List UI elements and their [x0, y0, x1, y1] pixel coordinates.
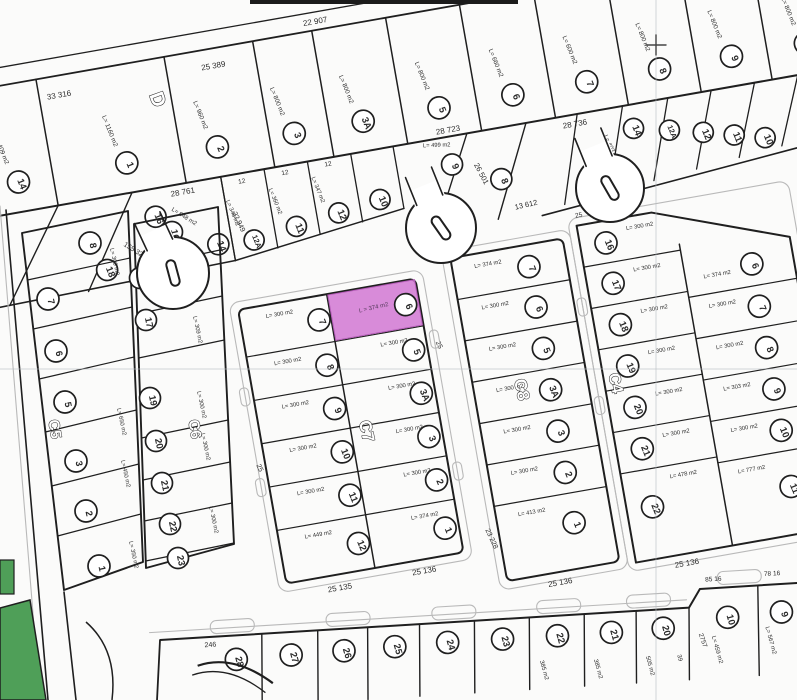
parcel-number-17: 17: [600, 271, 625, 296]
area-label: L= 300 m2: [633, 263, 661, 274]
area-label: L= 300 m2: [626, 221, 654, 232]
parcel-number-9: 9: [322, 396, 347, 421]
parcel-number-7: 7: [516, 254, 541, 279]
parcel-number-20: 20: [622, 395, 647, 420]
area-label: L= 600 m2: [561, 35, 579, 66]
boundary-line: [479, 404, 591, 424]
parcel-number-1: 1: [561, 510, 586, 535]
area-label: L= 300 m2: [265, 309, 293, 320]
parcel-number-6: 6: [523, 294, 548, 319]
parcel-number-24: 24: [436, 631, 459, 654]
parcel-number-12: 12: [346, 531, 371, 556]
boundary-line: [312, 31, 334, 157]
parcel-number-8: 8: [314, 352, 339, 377]
boundary-line: [685, 608, 693, 680]
parcel-number-12: 12: [692, 121, 715, 144]
boundary-line: [591, 291, 688, 308]
parcel-number-6: 6: [45, 340, 67, 362]
boundary-line: [58, 514, 141, 536]
boundary-line: [533, 0, 555, 118]
width-tick: 12: [324, 160, 333, 168]
parcel-number-1: 1: [88, 555, 110, 577]
boundary-line: [386, 18, 408, 144]
boundary-line: [487, 445, 599, 465]
boundary-number: 13 612: [514, 198, 538, 212]
area-label: L= 300 m2: [297, 487, 325, 498]
boundary-number: 22 907: [302, 15, 328, 28]
parcel-number-22: 22: [546, 624, 569, 647]
boundary-number: 78 16: [764, 570, 781, 578]
parcel-number-5: 5: [531, 336, 556, 361]
cadastral-map-canvas: 14L= 409 m21L= 1160 m22L= 960 m23L= 800 …: [0, 0, 797, 700]
area-label: L= 300 m2: [274, 357, 302, 368]
boundary-number: 246: [204, 642, 216, 650]
parcel-number-12: 12: [327, 201, 350, 224]
boundary-number: 25 135: [327, 581, 353, 594]
parcel-number-2: 2: [75, 500, 97, 522]
area-label: L= 374 m2: [474, 259, 502, 270]
lot-number: 22: [166, 520, 179, 533]
area-label: L= 300 m2: [662, 428, 690, 439]
boundary-number: 25 136: [411, 564, 437, 577]
boundary-line: [640, 98, 681, 181]
bottom-block: 28246272625242322385 m221385 m220505 m21…: [148, 566, 797, 700]
green-area: [0, 600, 46, 700]
parcel-number-10: 10: [768, 418, 793, 443]
road-tick: 25: [254, 463, 264, 473]
area-label: L= 300 m2: [481, 301, 509, 312]
parcel-number-7: 7: [747, 293, 772, 318]
boundary-line: [718, 444, 797, 463]
lot-circle: [793, 31, 797, 56]
scan-artifacts: [0, 0, 797, 700]
area-label: L= 300 m2: [207, 506, 219, 534]
boundary-line: [696, 320, 797, 339]
left-road-and-green: [0, 206, 113, 700]
block-label-C5: C5: [44, 418, 64, 440]
area-label: L= 800 m2: [268, 86, 286, 117]
block-label-C7: C7: [355, 419, 378, 444]
parcel-number-21: 21: [600, 621, 623, 644]
parcel-number-20: 20: [146, 431, 167, 452]
parcel-number-23: 23: [168, 548, 189, 569]
area-label: 385 m2: [592, 659, 603, 681]
boundary-line: [146, 543, 234, 561]
boundary-line: [152, 640, 164, 700]
area-label: L= 800 m2: [337, 74, 355, 105]
boundary-line: [494, 487, 606, 507]
block-label-C4: C4: [605, 372, 626, 396]
road-edge: [64, 592, 76, 700]
parcel-number-19: 19: [140, 388, 161, 409]
boundary-line: [144, 503, 232, 521]
parcel-number-16: 16: [593, 230, 618, 255]
parcel-number-7: 7: [306, 307, 331, 332]
area-label: L= 800 m2: [633, 22, 651, 53]
area-label: L= 650 m2: [115, 408, 127, 436]
boundary-line: [139, 340, 225, 358]
area-label: L= 300 m2: [488, 342, 516, 353]
boundary-line: [458, 280, 570, 300]
lot-number: 17: [142, 316, 155, 329]
boundary-number: 39: [675, 654, 683, 663]
area-label: 505 m2: [644, 656, 655, 678]
parcel-number-5: 5: [54, 391, 76, 413]
parcel-number-8: 8: [754, 335, 779, 360]
parcel-number-25: 25: [383, 635, 406, 658]
parcel-number-10: 10: [368, 188, 391, 211]
parcel-number-8: 8: [79, 232, 101, 254]
area-label: L= 300 m2: [289, 443, 317, 454]
lot-number: 23: [174, 554, 187, 567]
parcel-number-12A: 12A: [243, 228, 266, 251]
boundary-number: 25 136: [547, 576, 573, 589]
area-label: L= 300 m2: [640, 304, 668, 315]
parcel-number-10: 10: [330, 439, 355, 464]
area-label: L= 800 m2: [413, 61, 431, 92]
area-label: 385 m2: [538, 660, 549, 682]
parcel-number-20: 20: [652, 617, 675, 640]
area-label: L= 374 m2: [703, 270, 731, 281]
block-outline-C8: [450, 238, 619, 581]
parcel-number-26: 26: [332, 639, 355, 662]
boundary-number: 33 316: [46, 88, 72, 101]
boundary-line: [351, 154, 363, 222]
boundary-number: 25 389: [200, 59, 226, 72]
boundary-line: [689, 278, 797, 297]
parcel-number-7: 7: [574, 69, 599, 94]
boundary-number: 26 501: [472, 161, 491, 185]
area-label: L= 300 m2: [195, 391, 207, 419]
lot-number: 20: [152, 437, 165, 450]
area-label: L= 300 m2: [655, 387, 683, 398]
block-label-D: D: [144, 89, 170, 110]
parcel-number-7: 7: [37, 288, 59, 310]
area-label: L= 300 m2: [730, 423, 758, 434]
cadastral-map-scan-page: 14L= 409 m21L= 1160 m22L= 960 m23L= 800 …: [0, 0, 797, 700]
boundary-line: [613, 416, 710, 433]
parcel-number-21: 21: [630, 436, 655, 461]
parcel-number-17: 17: [136, 310, 157, 331]
top-road-edge: [0, 0, 797, 115]
parcel-number-1: 1: [432, 515, 457, 540]
boundary-line: [711, 402, 797, 421]
parcel-number-9: 9: [770, 600, 793, 623]
area-label: L= 300 m2: [510, 466, 538, 477]
parcel-number-2: 2: [205, 134, 230, 159]
parcel-number-6: 6: [500, 82, 525, 107]
boundary-number: 85 16: [705, 576, 722, 584]
boundary-line: [459, 5, 481, 131]
area-label: L= 459 m2: [710, 635, 724, 665]
parcel-number-3: 3: [65, 450, 87, 472]
block-label-C6: C6: [184, 418, 204, 440]
boundary-line: [750, 0, 772, 80]
area-label: L= 450 m2: [119, 460, 131, 488]
parcel-number-2: 2: [553, 460, 578, 485]
boundary-line: [620, 457, 717, 474]
parcel-number-11: 11: [778, 474, 797, 499]
area-label: L= 478 m2: [669, 470, 697, 481]
boundary-line: [465, 321, 577, 341]
boundary-line: [754, 585, 763, 675]
parcel-number-3A: 3A: [350, 108, 375, 133]
parcel-number-14: 14: [622, 117, 645, 140]
area-label: L= 499 m2: [423, 142, 451, 149]
parcel-number-11: 11: [337, 482, 362, 507]
area-label: L= 300 m2: [708, 299, 736, 310]
area-label: L= 350 m2: [127, 541, 139, 569]
area-label: L= 660 m2: [487, 48, 505, 79]
parcel-number-5: 5: [426, 95, 451, 120]
boundary-line: [253, 41, 275, 167]
boundary-line: [0, 205, 74, 305]
boundary-line: [598, 333, 695, 350]
area-label: L= 413 m2: [518, 508, 546, 519]
parcel-number-3A: 3A: [538, 377, 563, 402]
road-curve: [86, 622, 113, 700]
boundary-line: [632, 611, 640, 683]
parcel-number-23: 23: [491, 627, 514, 650]
area-label: L= 1160 m2: [100, 115, 119, 149]
boundary-line: [679, 0, 701, 92]
parcel-number-3: 3: [282, 121, 307, 146]
boundary-line: [703, 361, 797, 380]
area-label: L= 960 m2: [191, 100, 209, 131]
boundary-line: [580, 614, 588, 686]
boundary-line: [525, 617, 533, 689]
boundary-line: [470, 621, 478, 693]
parcel-number-22: 22: [160, 514, 181, 535]
parcel-number-10: 10: [793, 31, 797, 56]
parcel-number-3: 3: [545, 418, 570, 443]
parcel-number-11: 11: [285, 215, 308, 238]
area-label: L= 300 m2: [503, 425, 531, 436]
area-label: L= 449 m2: [304, 530, 332, 541]
parcel-number-9: 9: [440, 152, 464, 176]
scan-edge-bar: [250, 0, 518, 4]
boundary-line: [606, 0, 628, 105]
parcel-number-9: 9: [719, 44, 744, 69]
green-area: [0, 560, 14, 594]
parcel-number-9: 9: [761, 376, 786, 401]
parcel-number-1: 1: [114, 150, 139, 175]
boundary-line: [679, 244, 732, 545]
area-label: L= 309 m2: [191, 316, 203, 344]
width-tick: 12: [281, 169, 290, 177]
width-tick: 12: [238, 178, 247, 186]
boundary-line: [416, 624, 424, 696]
parcel-number-10: 10: [754, 126, 777, 149]
block-outline-bottom: [159, 582, 797, 640]
block-label-C8: C8: [510, 377, 533, 402]
parcel-number-14: 14: [6, 169, 31, 194]
boundary-line: [364, 627, 372, 699]
area-label: L= 300 m2: [281, 400, 309, 411]
parcel-number-6: 6: [739, 251, 764, 276]
parcel-number-27: 27: [280, 643, 303, 666]
boundary-number: 23 228: [483, 528, 498, 550]
area-label: L= 800 m2: [779, 0, 797, 27]
parcel-number-22: 22: [640, 494, 665, 519]
area-label: L= 300 m2: [716, 341, 744, 352]
parcel-number-10: 10: [716, 606, 739, 629]
parcel-number-8: 8: [647, 56, 672, 81]
area-label: L= 800 m2: [705, 9, 723, 40]
area-label: L= 303 m2: [723, 382, 751, 393]
area-label: L= 374 m2: [411, 511, 439, 522]
boundary-line: [164, 57, 186, 183]
boundary-line: [314, 630, 322, 700]
boundary-number: 28 761: [170, 185, 196, 198]
boundary-number: 25 136: [674, 557, 700, 570]
area-label: L= 300 m2: [648, 346, 676, 357]
parcel-number-18: 18: [608, 312, 633, 337]
area-label: L= 567 m2: [763, 626, 777, 656]
parcel-number-8: 8: [489, 167, 513, 191]
area-label: L= 409 m2: [0, 135, 10, 166]
rotated-parcel-grid: 14L= 409 m21L= 1160 m22L= 960 m23L= 800 …: [0, 0, 797, 700]
lot-number: 19: [146, 394, 159, 407]
parcel-number-21: 21: [152, 473, 173, 494]
area-label: L= 777 m2: [738, 465, 766, 476]
boundary-number: 2757: [697, 633, 708, 649]
boundary-line: [584, 250, 681, 267]
boundary-line: [393, 146, 404, 208]
road-tick: 25: [575, 212, 584, 220]
curb-line: [717, 569, 762, 585]
